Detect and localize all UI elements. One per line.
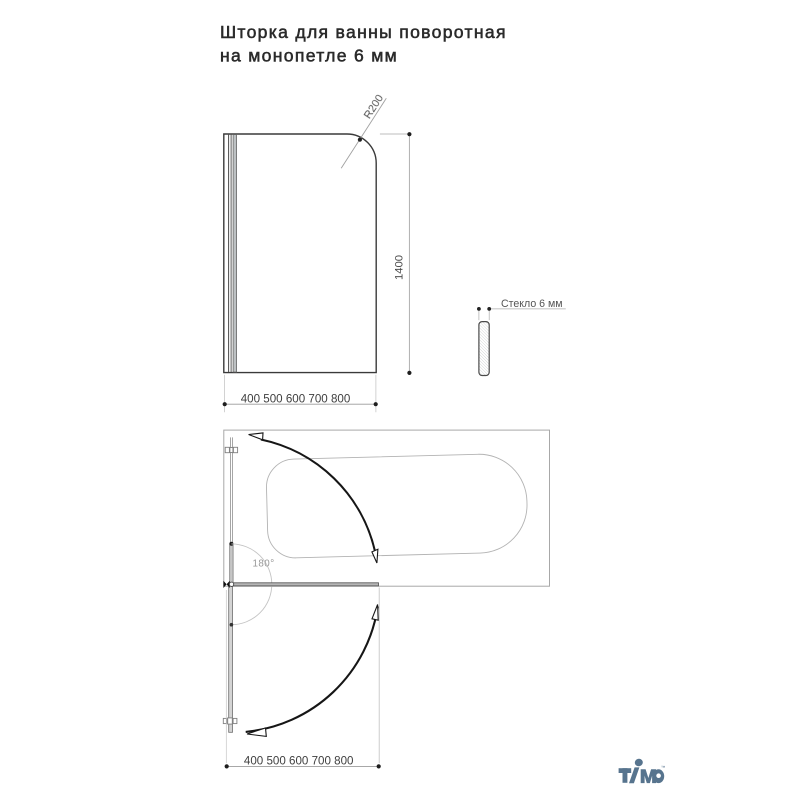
svg-text:R200: R200 — [362, 93, 386, 122]
svg-text:Шторка для ванны поворотная: Шторка для ванны поворотная — [220, 22, 507, 42]
svg-text:1400: 1400 — [394, 255, 406, 280]
svg-text:™: ™ — [661, 765, 666, 770]
svg-text:400 500 600 700 800: 400 500 600 700 800 — [244, 755, 354, 768]
svg-text:180°: 180° — [253, 558, 275, 569]
svg-text:на монопетле 6 мм: на монопетле 6 мм — [220, 46, 398, 66]
svg-text:Стекло 6 мм: Стекло 6 мм — [501, 298, 563, 310]
svg-text:400 500 600 700 800: 400 500 600 700 800 — [241, 392, 351, 405]
